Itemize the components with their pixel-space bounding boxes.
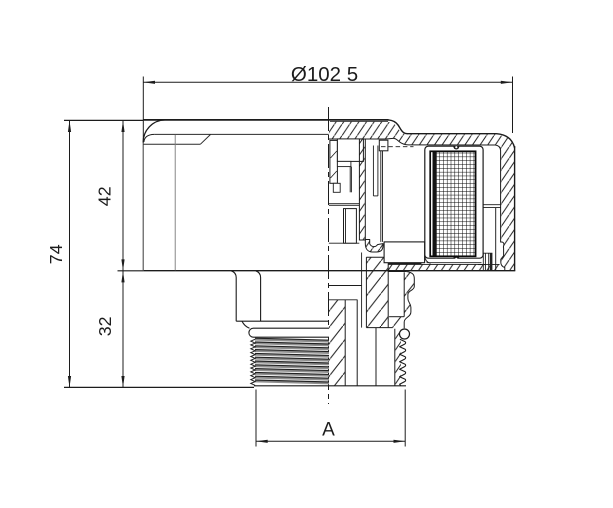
svg-text:Ø102 5: Ø102 5 [291, 63, 358, 86]
svg-text:32: 32 [95, 317, 115, 337]
svg-text:A: A [322, 420, 335, 441]
svg-text:74: 74 [46, 244, 66, 264]
svg-text:42: 42 [95, 186, 115, 206]
